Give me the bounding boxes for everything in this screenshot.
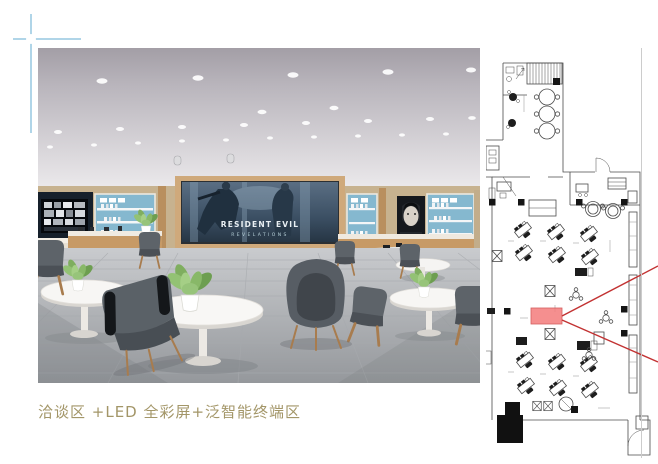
columns	[489, 78, 628, 413]
led-title: RESIDENT EVIL	[221, 220, 300, 229]
crosshair-gap-dot	[26, 34, 36, 44]
small-meeting-tables	[569, 288, 613, 361]
divider-line	[641, 48, 642, 458]
slide-page: RESIDENT EVIL REVELATIONS	[0, 0, 658, 464]
ceiling	[38, 48, 480, 198]
led-subtitle: REVELATIONS	[231, 232, 288, 238]
interior-rendering: RESIDENT EVIL REVELATIONS	[38, 48, 480, 383]
structure-core	[497, 402, 523, 443]
crosshair-vertical-line	[30, 14, 32, 133]
wall-right-edge	[474, 190, 480, 252]
led-screen-highlight	[531, 308, 562, 324]
led-screen: RESIDENT EVIL REVELATIONS	[175, 176, 345, 251]
caption: 洽谈区 +LED 全彩屏+泛智能终端区	[38, 401, 301, 422]
wall-display-counters	[629, 212, 637, 393]
entrance-door	[628, 416, 650, 455]
crosshair-horizontal-line	[13, 38, 81, 40]
upper-round-tables	[507, 89, 560, 139]
double-round-tables	[582, 202, 625, 219]
hall-fixtures	[486, 146, 597, 411]
annotation-marks	[508, 95, 610, 408]
floor-plan	[486, 48, 658, 460]
view-cone	[562, 266, 658, 362]
